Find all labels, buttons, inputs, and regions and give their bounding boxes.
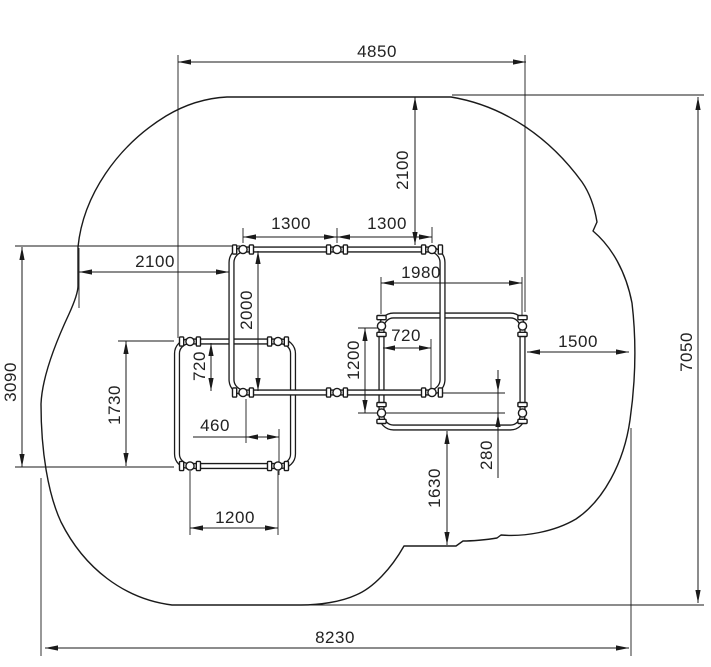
post-icon bbox=[180, 337, 201, 346]
dim-label-1300-left: 1300 bbox=[271, 214, 311, 233]
post-icon bbox=[233, 245, 254, 254]
dim-8230: 8230 bbox=[45, 628, 629, 651]
drawing-canvas: 4850 2100 1300 1300 2100 1980 2000 bbox=[0, 0, 711, 667]
dim-label-460: 460 bbox=[200, 416, 230, 435]
post-icon bbox=[377, 316, 386, 337]
dim-label-1300-right: 1300 bbox=[367, 214, 407, 233]
dim-1730: 1730 bbox=[105, 341, 129, 466]
dim-label-1500: 1500 bbox=[558, 332, 598, 351]
dim-label-2000: 2000 bbox=[237, 290, 256, 330]
dim-label-2100-top: 2100 bbox=[393, 150, 412, 190]
dim-label-8230: 8230 bbox=[315, 628, 355, 647]
dim-7050: 7050 bbox=[677, 97, 701, 603]
dim-label-720-left: 720 bbox=[190, 351, 209, 381]
post-icon bbox=[518, 403, 527, 424]
post-icon bbox=[518, 316, 527, 337]
safety-area-outline bbox=[41, 97, 635, 605]
dim-label-4850: 4850 bbox=[357, 42, 397, 61]
post-icon bbox=[180, 461, 201, 470]
dim-460: 460 bbox=[193, 416, 279, 440]
dim-1980: 1980 bbox=[381, 263, 522, 286]
dim-2000: 2000 bbox=[237, 251, 261, 391]
post-icon bbox=[327, 388, 348, 397]
dim-1500: 1500 bbox=[527, 332, 629, 355]
dim-label-2100-left: 2100 bbox=[135, 252, 175, 271]
dim-label-1630: 1630 bbox=[425, 468, 444, 508]
dim-1200-bottom: 1200 bbox=[190, 508, 278, 531]
cad-plan-drawing: 4850 2100 1300 1300 2100 1980 2000 bbox=[0, 0, 711, 667]
post-icon bbox=[422, 245, 443, 254]
dim-720-left: 720 bbox=[190, 343, 214, 391]
dim-label-1200-right: 1200 bbox=[344, 340, 363, 380]
dim-280: 280 bbox=[477, 370, 501, 478]
dim-1300-left: 1300 bbox=[243, 214, 337, 240]
post-icon bbox=[233, 388, 254, 397]
dim-3090: 3090 bbox=[1, 247, 25, 467]
dim-1200-right: 1200 bbox=[344, 328, 368, 413]
post-icon bbox=[377, 403, 386, 424]
dim-2100-left: 2100 bbox=[79, 252, 229, 275]
dim-label-1980: 1980 bbox=[401, 263, 441, 282]
dim-label-7050: 7050 bbox=[677, 332, 696, 372]
dim-1630: 1630 bbox=[425, 431, 450, 545]
post-icon bbox=[268, 337, 289, 346]
dim-label-3090: 3090 bbox=[1, 362, 20, 402]
dim-label-1200-bottom: 1200 bbox=[215, 508, 255, 527]
post-icon bbox=[422, 388, 443, 397]
post-icon bbox=[268, 461, 289, 470]
dim-label-280: 280 bbox=[477, 440, 496, 470]
dim-4850: 4850 bbox=[178, 42, 526, 65]
post-icon bbox=[327, 245, 348, 254]
dim-720-right: 720 bbox=[383, 326, 431, 351]
dim-label-720-right: 720 bbox=[391, 326, 421, 345]
dim-label-1730: 1730 bbox=[105, 385, 124, 425]
dim-1300-right: 1300 bbox=[337, 214, 432, 240]
